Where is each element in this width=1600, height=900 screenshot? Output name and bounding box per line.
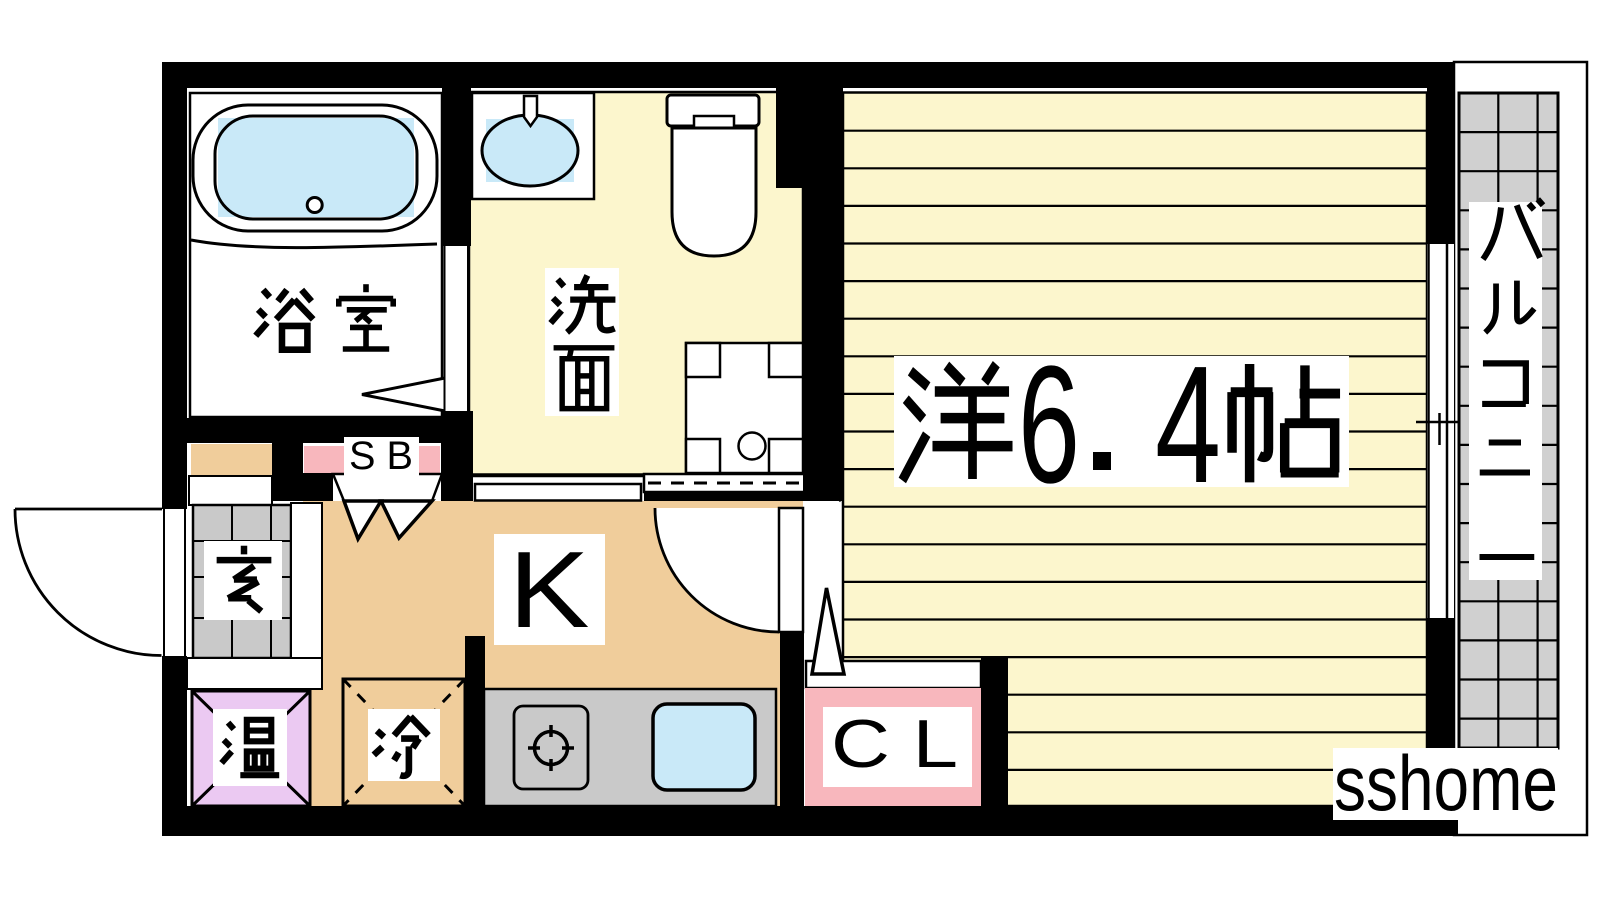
svg-text:6: 6 [1018, 332, 1080, 518]
svg-text:S B: S B [349, 434, 413, 478]
svg-text:sshome: sshome [1334, 741, 1558, 827]
svg-text:K: K [509, 529, 590, 651]
svg-text:C L: C L [831, 706, 958, 782]
svg-text:4: 4 [1155, 332, 1221, 518]
